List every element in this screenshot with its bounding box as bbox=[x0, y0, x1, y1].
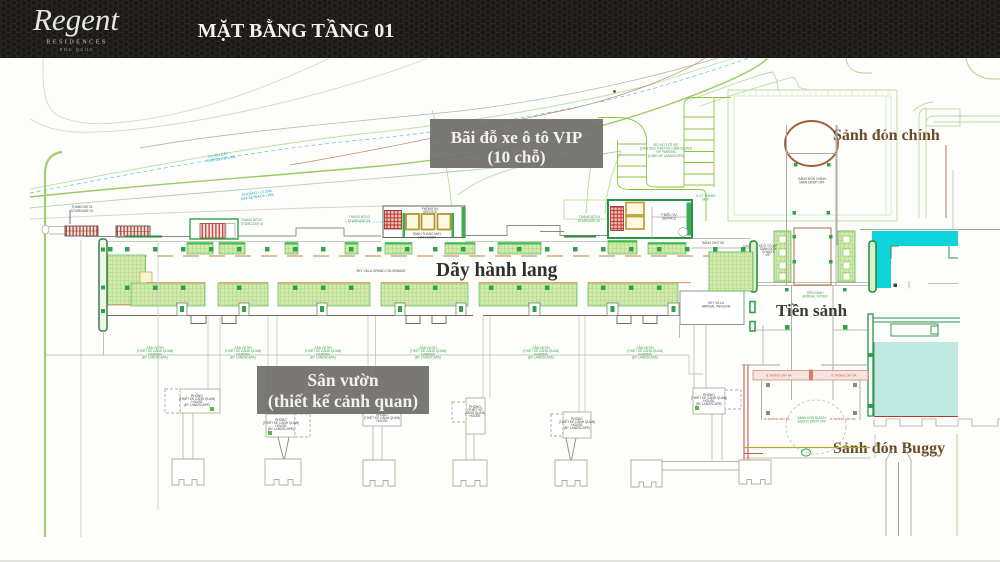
svg-text:SẢNH ĐÓN BUGGYBUGGY DROP OFF: SẢNH ĐÓN BUGGYBUGGY DROP OFF bbox=[797, 415, 827, 424]
svg-text:Sân vườn: Sân vườn bbox=[307, 370, 379, 390]
svg-text:B.THỐNG CÂY PA: B.THỐNG CÂY PA bbox=[764, 416, 789, 421]
svg-text:PHÒNG KVSERVICE: PHÒNG KVSERVICE bbox=[422, 206, 440, 214]
svg-text:Regent: Regent bbox=[32, 2, 120, 37]
svg-text:THANG BỘ 03STAIRCASE 03: THANG BỘ 03STAIRCASE 03 bbox=[348, 214, 370, 223]
svg-text:Bãi đỗ xe ô tô VIP: Bãi đỗ xe ô tô VIP bbox=[451, 128, 582, 147]
svg-text:Dãy hành lang: Dãy hành lang bbox=[436, 260, 558, 281]
svg-text:B.THỐNG CÂY PA: B.THỐNG CÂY PA bbox=[766, 373, 791, 378]
svg-text:P.ĐIỀU VỤSERVICE: P.ĐIỀU VỤSERVICE bbox=[661, 212, 677, 220]
svg-text:THANG BỘ 01STAIRCASE 01: THANG BỘ 01STAIRCASE 01 bbox=[71, 204, 93, 213]
svg-text:SẢNH CHỜ XE: SẢNH CHỜ XE bbox=[702, 240, 724, 245]
svg-text:SKY VILLA GRAND COLONNADE: SKY VILLA GRAND COLONNADE bbox=[356, 269, 405, 273]
svg-text:THANG BỘ 04STAIRCASE 04: THANG BỘ 04STAIRCASE 04 bbox=[578, 214, 600, 223]
svg-text:PHU QUOC: PHU QUOC bbox=[60, 47, 94, 52]
svg-text:B.THỐNG CÂY PA: B.THỐNG CÂY PA bbox=[830, 416, 855, 421]
svg-text:MẶT BẰNG TẦNG 01: MẶT BẰNG TẦNG 01 bbox=[198, 18, 395, 42]
svg-text:RESIDENCES: RESIDENCES bbox=[46, 39, 107, 46]
svg-text:THANG BỘ 02STAIRCASE 02: THANG BỘ 02STAIRCASE 02 bbox=[241, 217, 263, 226]
svg-text:B.THỐNG CÂY PA: B.THỐNG CÂY PA bbox=[831, 373, 856, 378]
svg-text:(10 chỗ): (10 chỗ) bbox=[487, 148, 545, 167]
svg-text:(thiết kế cảnh quan): (thiết kế cảnh quan) bbox=[268, 391, 418, 411]
svg-text:SẢNH ĐÓN CHÍNHMAIN DROP OFF: SẢNH ĐÓN CHÍNHMAIN DROP OFF bbox=[798, 176, 827, 185]
svg-text:Sảnh đón chính: Sảnh đón chính bbox=[833, 127, 940, 144]
svg-text:Tiền sảnh: Tiền sảnh bbox=[776, 301, 848, 320]
